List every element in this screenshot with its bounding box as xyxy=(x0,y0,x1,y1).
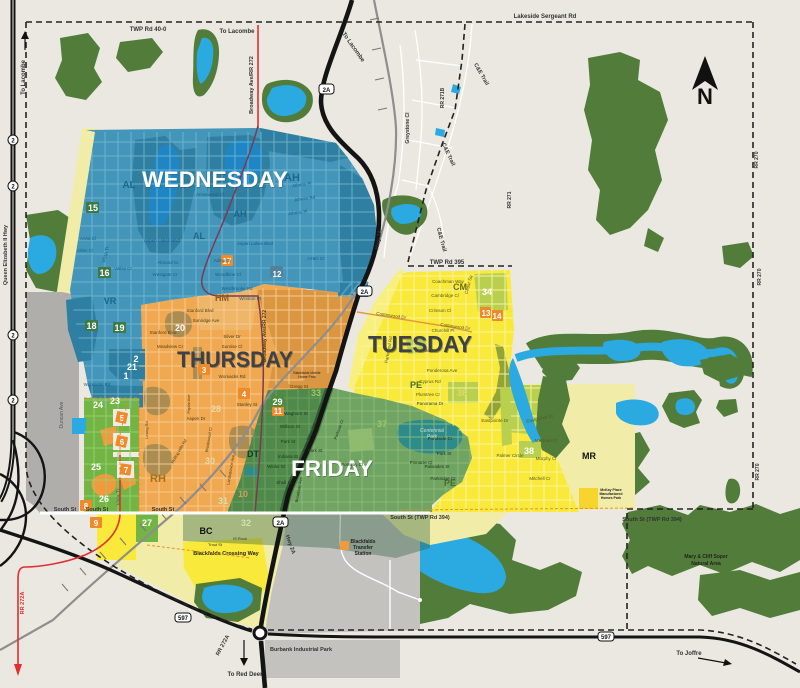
svg-text:597: 597 xyxy=(178,616,189,622)
svg-text:29: 29 xyxy=(272,397,282,407)
svg-text:WEDNESDAY: WEDNESDAY xyxy=(142,167,288,192)
svg-text:RR 271B: RR 271B xyxy=(440,87,446,108)
svg-text:Woodbine Cl: Woodbine Cl xyxy=(215,272,241,277)
svg-text:Coachman Way: Coachman Way xyxy=(432,279,465,284)
svg-text:To Red Deer: To Red Deer xyxy=(228,672,264,678)
svg-text:RH: RH xyxy=(150,473,166,485)
svg-text:Queen Elizabeth II Hwy: Queen Elizabeth II Hwy xyxy=(3,224,9,285)
svg-text:MR: MR xyxy=(582,451,596,461)
svg-text:DT: DT xyxy=(247,449,259,459)
svg-text:Winks St: Winks St xyxy=(267,464,286,469)
svg-text:Lakeside Sergeant Rd: Lakeside Sergeant Rd xyxy=(514,14,577,20)
svg-text:Adina Cl: Adina Cl xyxy=(213,258,230,263)
svg-text:Camille Ct: Camille Ct xyxy=(415,348,437,353)
svg-text:Broadway Ave/RR 272: Broadway Ave/RR 272 xyxy=(262,310,268,363)
svg-text:Almond Cr: Almond Cr xyxy=(157,260,179,265)
svg-text:Arrowwood Cl: Arrowwood Cl xyxy=(196,192,224,197)
svg-text:Cambridge Cl: Cambridge Cl xyxy=(431,293,459,298)
svg-text:Womacks Rd: Womacks Rd xyxy=(84,382,111,387)
svg-text:Homes Park: Homes Park xyxy=(601,496,621,500)
svg-text:Natural Area: Natural Area xyxy=(691,561,721,567)
svg-text:Churchill Pl: Churchill Pl xyxy=(432,328,455,333)
svg-text:Plumtree Cr: Plumtree Cr xyxy=(416,392,441,397)
svg-text:Valley Cr: Valley Cr xyxy=(114,266,132,271)
svg-text:TWP Rd 395: TWP Rd 395 xyxy=(430,260,465,266)
svg-text:33: 33 xyxy=(311,388,321,398)
svg-text:South St: South St xyxy=(86,507,109,513)
svg-text:Indiana St: Indiana St xyxy=(278,454,299,459)
svg-text:597: 597 xyxy=(601,635,612,641)
svg-text:Aztec Cr: Aztec Cr xyxy=(307,256,325,261)
svg-text:AL: AL xyxy=(122,180,135,191)
svg-text:Aspen Lakes Blvd: Aspen Lakes Blvd xyxy=(144,238,181,243)
svg-text:19: 19 xyxy=(114,323,124,333)
svg-text:10: 10 xyxy=(238,489,248,499)
svg-text:6: 6 xyxy=(120,438,125,447)
svg-text:Vista Tr: Vista Tr xyxy=(116,488,122,505)
svg-text:31: 31 xyxy=(218,496,228,506)
svg-text:VR: VR xyxy=(104,296,117,306)
svg-text:Anna Cl: Anna Cl xyxy=(80,236,96,241)
svg-text:Stanford Blvd: Stanford Blvd xyxy=(149,330,177,335)
svg-text:38: 38 xyxy=(524,446,534,456)
svg-text:To Joffre: To Joffre xyxy=(676,651,702,657)
svg-text:13: 13 xyxy=(482,309,491,318)
svg-text:Leung Rd: Leung Rd xyxy=(144,421,149,438)
svg-text:To Lacombe: To Lacombe xyxy=(220,29,256,35)
svg-text:Aspen Lakes Blvd: Aspen Lakes Blvd xyxy=(237,241,274,246)
svg-text:Westbrooke Rd: Westbrooke Rd xyxy=(222,286,253,291)
svg-text:Parkridge Cr: Parkridge Cr xyxy=(430,476,456,481)
svg-text:Park St: Park St xyxy=(308,448,324,453)
svg-text:FRIDAY: FRIDAY xyxy=(291,456,373,481)
svg-text:RR 272A: RR 272A xyxy=(20,592,26,615)
svg-text:4: 4 xyxy=(242,390,247,399)
svg-text:32: 32 xyxy=(241,518,251,528)
svg-text:Ponderosa Ave: Ponderosa Ave xyxy=(427,368,458,373)
svg-text:Greystone Cl: Greystone Cl xyxy=(405,112,411,144)
svg-text:South St: South St xyxy=(54,507,77,513)
svg-text:9: 9 xyxy=(94,519,99,528)
svg-text:RR 270: RR 270 xyxy=(757,268,763,285)
svg-text:1: 1 xyxy=(123,371,128,381)
svg-text:TWP Rd 40-0: TWP Rd 40-0 xyxy=(130,27,167,33)
svg-text:Eastpointe Dr: Eastpointe Dr xyxy=(481,418,509,423)
svg-text:Pondside Cr: Pondside Cr xyxy=(428,436,453,441)
svg-text:TUESDAY: TUESDAY xyxy=(368,331,472,357)
svg-text:Poplar Ave: Poplar Ave xyxy=(186,394,191,414)
svg-text:Gregg St: Gregg St xyxy=(290,384,309,389)
svg-text:2A: 2A xyxy=(277,521,285,527)
svg-text:South St: South St xyxy=(152,507,175,513)
svg-text:11: 11 xyxy=(274,407,283,416)
svg-text:Home Park: Home Park xyxy=(298,375,316,379)
svg-text:South St (TWP Rd 394): South St (TWP Rd 394) xyxy=(390,515,450,521)
svg-text:South St (TWP Rd 394): South St (TWP Rd 394) xyxy=(622,517,682,523)
svg-text:Murphy Cl: Murphy Cl xyxy=(536,456,557,461)
svg-text:3: 3 xyxy=(202,366,207,375)
svg-text:RR 270: RR 270 xyxy=(755,463,761,480)
svg-text:Burbank Industrial Park: Burbank Industrial Park xyxy=(270,647,333,653)
svg-text:Crimson Cl: Crimson Cl xyxy=(429,308,451,313)
svg-text:Cyprus Rd: Cyprus Rd xyxy=(419,379,441,384)
svg-text:18: 18 xyxy=(86,321,96,331)
svg-text:Pinnacle Cl: Pinnacle Cl xyxy=(410,460,433,465)
svg-text:To Lacombe: To Lacombe xyxy=(21,59,27,95)
svg-text:Westgate Cr: Westgate Cr xyxy=(153,272,178,277)
svg-text:Stanley St: Stanley St xyxy=(237,402,258,407)
svg-text:HM: HM xyxy=(215,293,229,303)
svg-text:Broadway Ave/RR 272: Broadway Ave/RR 272 xyxy=(249,56,255,114)
svg-text:Meadview Cr: Meadview Cr xyxy=(157,344,184,349)
svg-text:Waghorn St: Waghorn St xyxy=(284,411,308,416)
svg-text:Womacks Rd: Womacks Rd xyxy=(219,374,246,379)
svg-text:Shull St: Shull St xyxy=(276,480,292,485)
svg-text:28: 28 xyxy=(211,404,221,414)
svg-text:27: 27 xyxy=(142,518,152,528)
svg-text:Park St: Park St xyxy=(437,451,453,456)
svg-text:Stanford Blvd: Stanford Blvd xyxy=(186,308,214,313)
svg-text:BC: BC xyxy=(200,526,213,536)
svg-text:Winston Pl: Winston Pl xyxy=(239,296,261,301)
svg-text:RR 271: RR 271 xyxy=(507,191,513,208)
svg-text:THURSDAY: THURSDAY xyxy=(177,347,293,372)
svg-text:AL: AL xyxy=(193,231,205,241)
svg-text:Portway Cl: Portway Cl xyxy=(341,462,363,467)
svg-text:12: 12 xyxy=(273,270,282,279)
svg-text:25: 25 xyxy=(91,462,101,472)
svg-text:30: 30 xyxy=(205,456,215,466)
svg-text:Station: Station xyxy=(355,551,372,557)
svg-text:16: 16 xyxy=(99,268,109,278)
svg-text:IS Rock: IS Rock xyxy=(233,536,247,541)
svg-text:Panorama Dr: Panorama Dr xyxy=(417,401,444,406)
svg-text:Palmer Circle: Palmer Circle xyxy=(496,453,524,458)
svg-text:Mary & Cliff Soper: Mary & Cliff Soper xyxy=(684,554,727,560)
svg-text:Mitchell Cr: Mitchell Cr xyxy=(529,476,551,481)
svg-text:36: 36 xyxy=(457,388,467,398)
svg-text:Sunridge Ave: Sunridge Ave xyxy=(193,318,220,323)
svg-text:14: 14 xyxy=(493,312,502,321)
svg-text:N: N xyxy=(697,84,713,109)
svg-text:Arlen Cl: Arlen Cl xyxy=(77,248,93,253)
svg-text:Silver Dr: Silver Dr xyxy=(223,334,241,339)
svg-text:15: 15 xyxy=(88,203,98,213)
svg-text:24: 24 xyxy=(93,400,103,410)
svg-text:Maclean Cl: Maclean Cl xyxy=(535,438,558,443)
svg-text:Sunrise Cl: Sunrise Cl xyxy=(222,344,243,349)
svg-text:Willson St: Willson St xyxy=(280,424,301,429)
svg-text:34: 34 xyxy=(482,287,492,297)
svg-text:2A: 2A xyxy=(323,88,331,94)
svg-text:Park St: Park St xyxy=(281,439,297,444)
svg-text:7: 7 xyxy=(124,466,129,475)
svg-text:Aspen Dr: Aspen Dr xyxy=(187,416,206,421)
svg-text:26: 26 xyxy=(99,494,109,504)
svg-text:37: 37 xyxy=(377,419,387,429)
svg-text:AH: AH xyxy=(234,209,247,219)
svg-text:RR 270: RR 270 xyxy=(754,151,760,168)
svg-text:Duncan Ave: Duncan Ave xyxy=(59,401,65,428)
svg-text:2A: 2A xyxy=(361,290,369,296)
svg-text:Trout St: Trout St xyxy=(208,542,223,547)
